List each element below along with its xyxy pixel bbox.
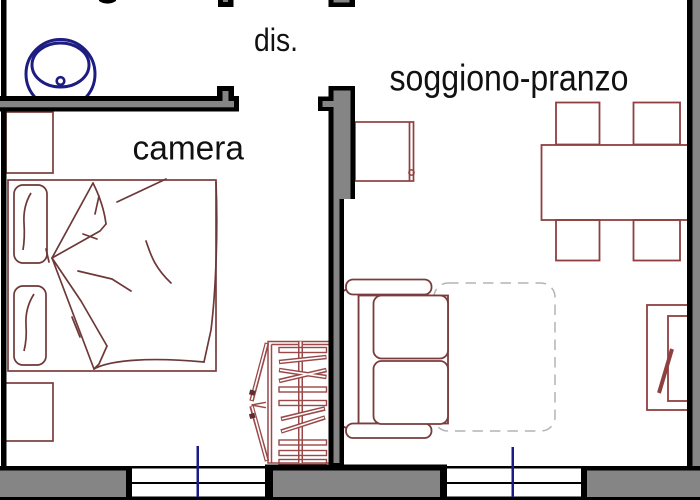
svg-text:camera: camera <box>133 130 245 168</box>
svg-text:soggiono-pranzo: soggiono-pranzo <box>390 58 629 99</box>
svg-text:dis.: dis. <box>254 22 298 58</box>
